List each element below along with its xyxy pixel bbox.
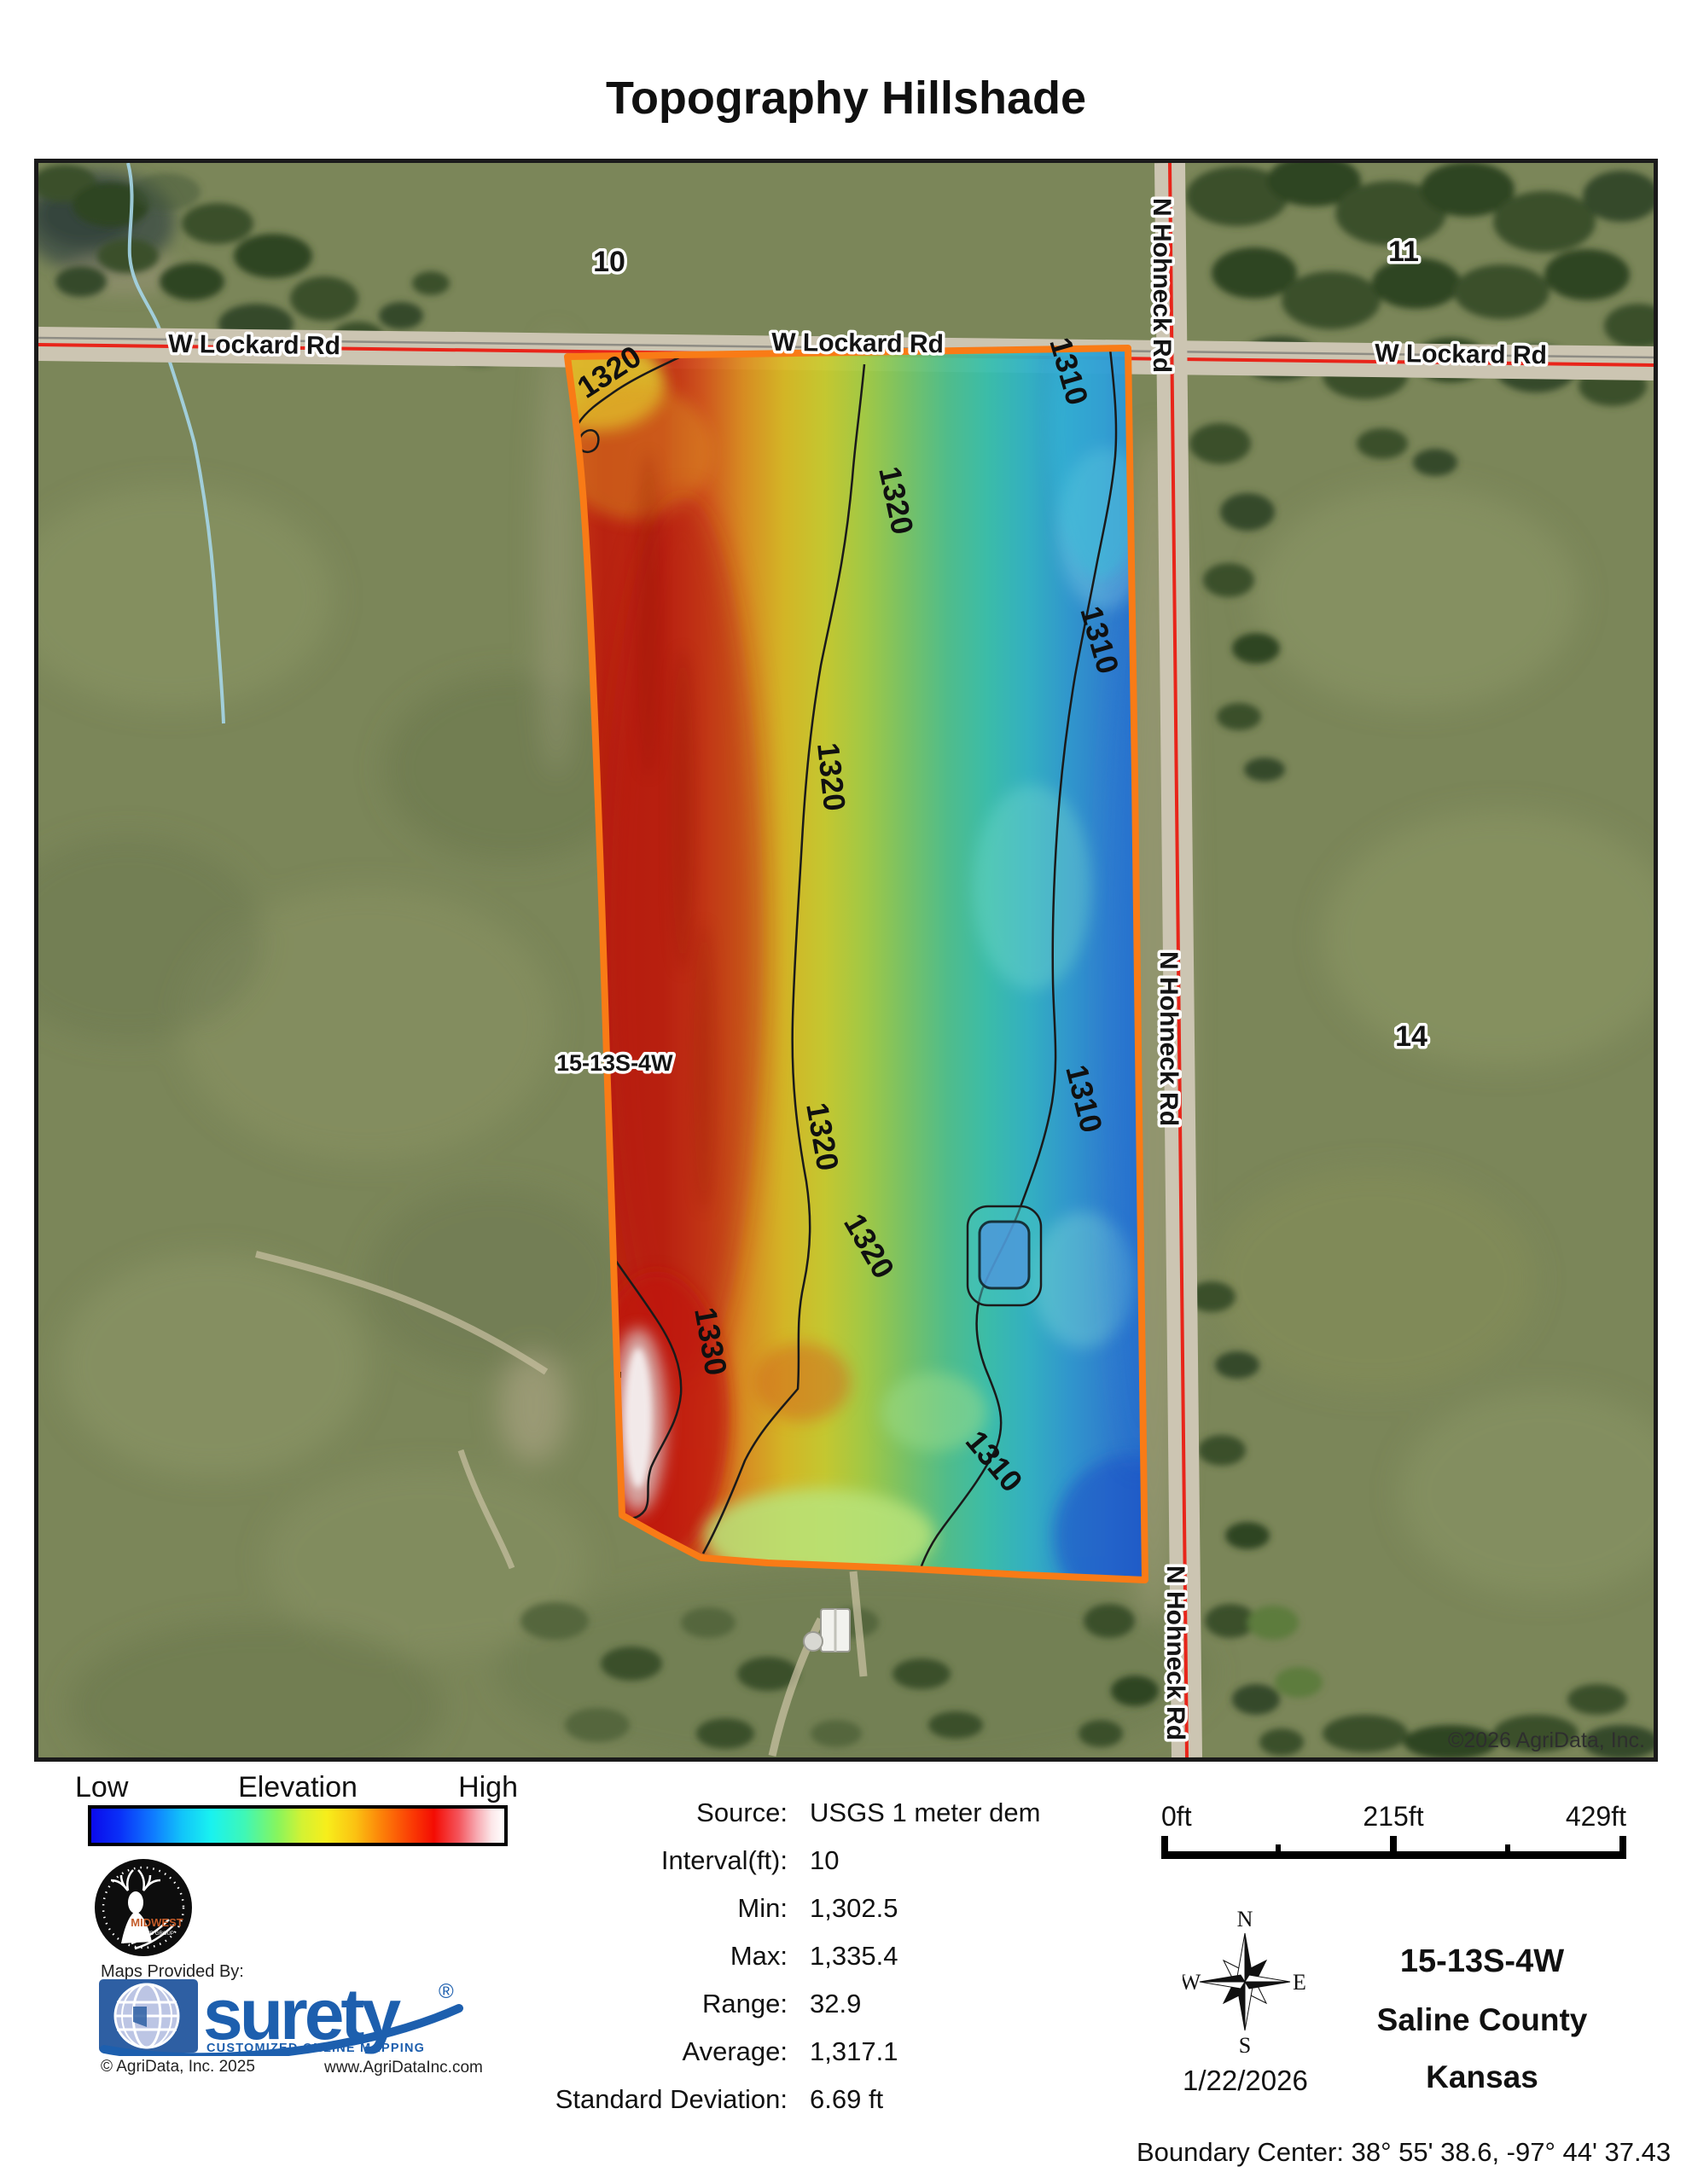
stat-label: Interval(ft):	[527, 1845, 810, 1876]
parcel-label: 15-13S-4W	[556, 1050, 673, 1076]
road-label-w-lockard: W Lockard Rd	[1375, 340, 1547, 369]
stat-value: 10	[810, 1845, 839, 1876]
legend-high-label: High	[458, 1771, 518, 1804]
stat-value: 6.69 ft	[810, 2084, 883, 2115]
location-trs: 15-13S-4W	[1323, 1943, 1642, 1980]
legend-title: Elevation	[238, 1771, 358, 1804]
surety-logo: surety ® CUSTOMIZED ONLINE MAPPING	[96, 1978, 488, 2056]
map-canvas: 1320 1320 1320 1320 1320 1310 1310 1310 …	[34, 159, 1658, 1762]
compass-north-label: N	[1237, 1907, 1253, 1931]
stat-value: 32.9	[810, 1989, 861, 2019]
location-block: 15-13S-4W Saline County Kansas	[1323, 1943, 1642, 2095]
midwest-sub-label: LAND GROUP	[140, 1931, 174, 1937]
boundary-center: Boundary Center: 38° 55' 38.6, -97° 44' …	[1137, 2137, 1683, 2168]
stat-row-max: Max:1,335.4	[527, 1932, 1073, 1980]
map-svg: 1320 1320 1320 1320 1320 1310 1310 1310 …	[38, 163, 1654, 1757]
road-label-n-hohneck: N Hohneck Rd	[1161, 1565, 1189, 1740]
legend-low-label: Low	[75, 1771, 128, 1804]
field-pond	[968, 1206, 1041, 1305]
boundary-center-value: 38° 55' 38.6, -97° 44' 37.43	[1352, 2137, 1671, 2167]
legend: Low Elevation High	[68, 1771, 529, 1805]
stat-value: 1,335.4	[810, 1941, 898, 1972]
elevation-stats: Source:USGS 1 meter dem Interval(ft):10 …	[527, 1789, 1073, 2123]
stat-label: Min:	[527, 1893, 810, 1924]
road-label-w-lockard: W Lockard Rd	[771, 328, 944, 358]
stat-row-source: Source:USGS 1 meter dem	[527, 1789, 1073, 1837]
stat-value: 1,317.1	[810, 2036, 898, 2067]
contour-label: 1320	[811, 741, 852, 813]
scale-middle-label: 215ft	[1363, 1801, 1423, 1832]
midwest-land-group-logo: MIDWEST LAND GROUP	[90, 1855, 196, 1960]
agridata-website: www.AgriDataInc.com	[324, 2059, 483, 2077]
stat-row-interval: Interval(ft):10	[527, 1837, 1073, 1885]
road-label-n-hohneck: N Hohneck Rd	[1154, 951, 1183, 1126]
stat-value: 1,302.5	[810, 1893, 898, 1924]
globe-icon	[115, 1984, 178, 2047]
stat-row-average: Average:1,317.1	[527, 2028, 1073, 2076]
elevation-overlay	[529, 273, 1216, 1617]
road-label-w-lockard: W Lockard Rd	[168, 330, 340, 360]
stat-value: USGS 1 meter dem	[810, 1798, 1040, 1828]
road-label-n-hohneck: N Hohneck Rd	[1148, 198, 1176, 373]
boundary-center-label: Boundary Center:	[1137, 2137, 1344, 2167]
stat-label: Standard Deviation:	[527, 2084, 810, 2115]
stat-label: Range:	[527, 1989, 810, 2019]
location-state: Kansas	[1323, 2059, 1642, 2095]
compass-west-label: W	[1183, 1970, 1201, 1995]
scale-bar-graphic	[1161, 1836, 1626, 1859]
location-county: Saline County	[1323, 2002, 1642, 2038]
scale-end-label: 429ft	[1566, 1801, 1626, 1832]
stat-label: Average:	[527, 2036, 810, 2067]
stat-label: Max:	[527, 1941, 810, 1972]
legend-gradient-bar	[88, 1805, 508, 1846]
surety-registered: ®	[439, 1980, 454, 2003]
scale-bar: 0ft 215ft 429ft	[1152, 1793, 1638, 1865]
scale-start-label: 0ft	[1161, 1801, 1192, 1832]
compass-east-label: E	[1293, 1970, 1306, 1995]
section-label-11: 11	[1388, 235, 1419, 268]
map-copyright: ©2026 AgriData, Inc.	[1448, 1728, 1645, 1752]
section-label-10: 10	[593, 246, 625, 278]
page-title: Topography Hillshade	[0, 72, 1692, 125]
stat-row-min: Min:1,302.5	[527, 1885, 1073, 1932]
stat-row-stddev: Standard Deviation:6.69 ft	[527, 2076, 1073, 2123]
compass-rose: N S E W	[1183, 1904, 1307, 2058]
section-label-14: 14	[1395, 1020, 1427, 1053]
compass-south-label: S	[1239, 2033, 1251, 2058]
stat-row-range: Range:32.9	[527, 1980, 1073, 2028]
stat-label: Source:	[527, 1798, 810, 1828]
surety-tagline: CUSTOMIZED ONLINE MAPPING	[206, 2042, 425, 2055]
agridata-copyright: © AgriData, Inc. 2025	[101, 2058, 255, 2077]
map-date: 1/22/2026	[1183, 2065, 1307, 2097]
midwest-label: MIDWEST	[131, 1916, 183, 1929]
report-page: Topography Hillshade	[0, 0, 1692, 2184]
